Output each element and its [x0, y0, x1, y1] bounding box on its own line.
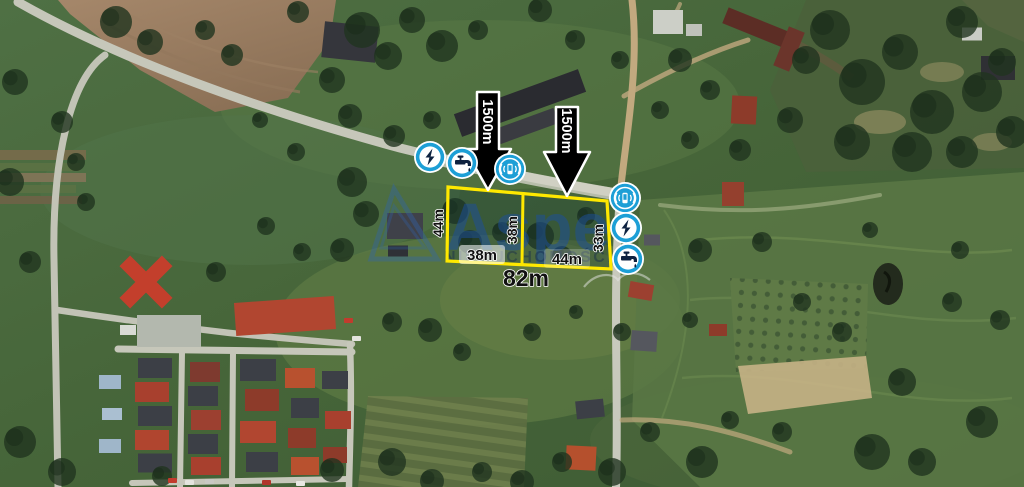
water-icon [446, 147, 478, 179]
measure-total-frontage: 82m [503, 265, 549, 291]
gsm-signal-icon [609, 182, 641, 214]
distance-arrows: 1500m 1500m [465, 92, 590, 196]
measure-divider: 38m [504, 216, 520, 244]
gsm-signal-icon [494, 153, 526, 185]
measure-frontage-left: 38m [467, 247, 497, 264]
measure-right-side: 33m [590, 224, 606, 252]
arrow-distance-label: 1500m [479, 99, 495, 144]
measure-left-side: 44m [430, 209, 446, 237]
water-icon [612, 243, 644, 275]
measure-frontage-right: 44m [552, 251, 582, 268]
annotation-overlay: Aspe NIERUCHOMOŚCI 44m 38m 33m 38m 44m 8… [0, 0, 1024, 487]
listing-photo: Aspe NIERUCHOMOŚCI 44m 38m 33m 38m 44m 8… [0, 0, 1024, 487]
arrow-distance-label: 1500m [558, 108, 574, 153]
electricity-icon [414, 141, 446, 173]
plot-divider [522, 192, 523, 265]
electricity-icon [610, 212, 642, 244]
watermark-swoosh [584, 273, 650, 287]
